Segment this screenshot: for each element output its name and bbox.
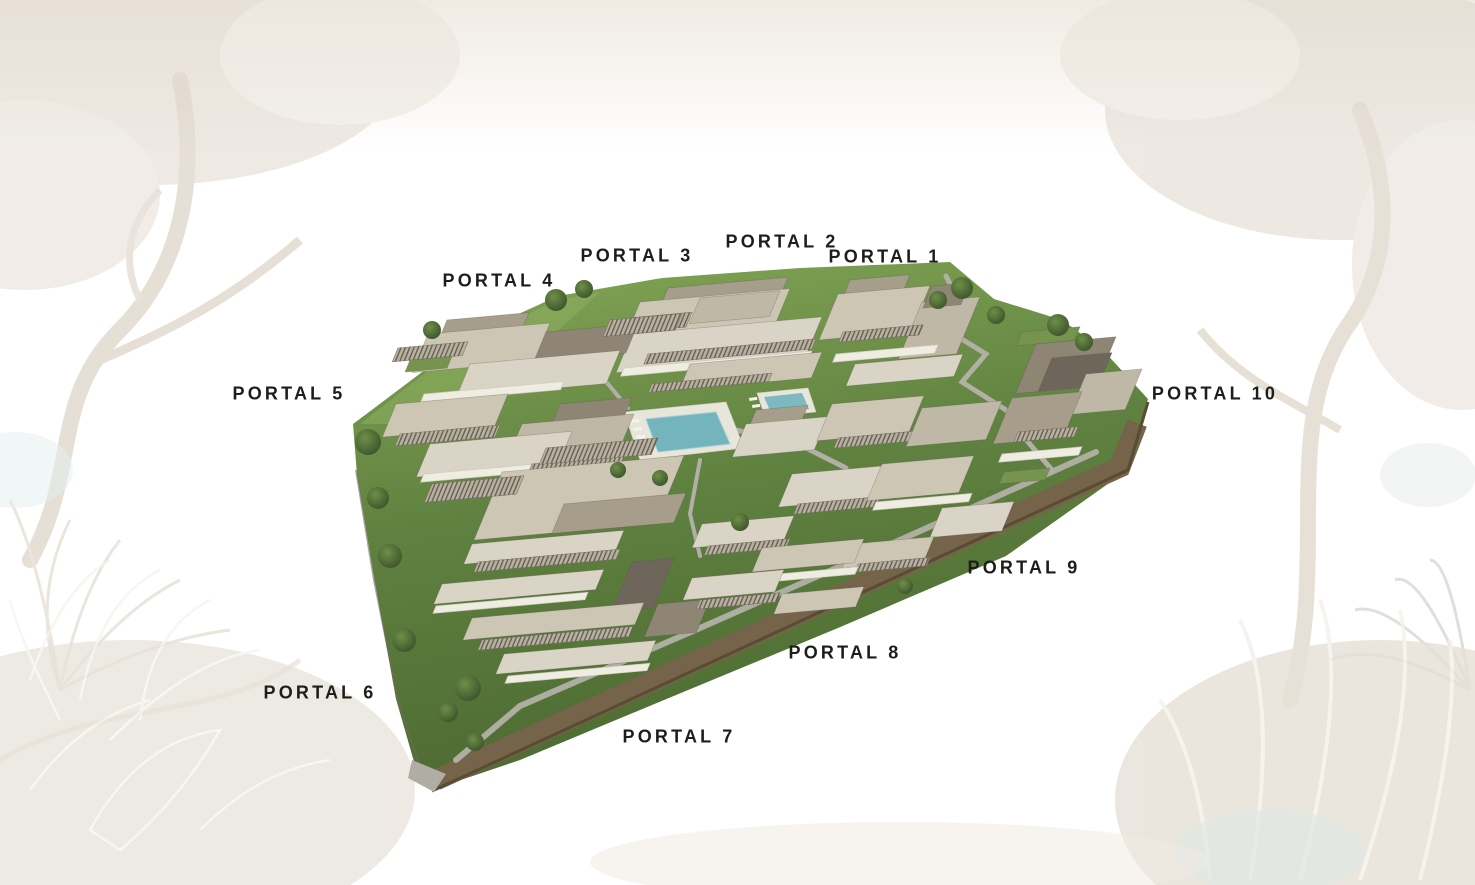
portal-label-7[interactable]: PORTAL 7 [623, 727, 736, 748]
site-plan-page: PORTAL 1PORTAL 2PORTAL 3PORTAL 4PORTAL 5… [0, 0, 1475, 885]
portal-label-1[interactable]: PORTAL 1 [829, 247, 942, 268]
portal-label-6[interactable]: PORTAL 6 [264, 683, 377, 704]
portal-label-2[interactable]: PORTAL 2 [726, 232, 839, 253]
portal-label-9[interactable]: PORTAL 9 [968, 558, 1081, 579]
portal-label-8[interactable]: PORTAL 8 [789, 643, 902, 664]
portal-label-4[interactable]: PORTAL 4 [443, 271, 556, 292]
portal-label-5[interactable]: PORTAL 5 [233, 384, 346, 405]
portal-label-3[interactable]: PORTAL 3 [581, 246, 694, 267]
portal-label-10[interactable]: PORTAL 10 [1152, 384, 1278, 405]
portal-labels: PORTAL 1PORTAL 2PORTAL 3PORTAL 4PORTAL 5… [0, 0, 1475, 885]
